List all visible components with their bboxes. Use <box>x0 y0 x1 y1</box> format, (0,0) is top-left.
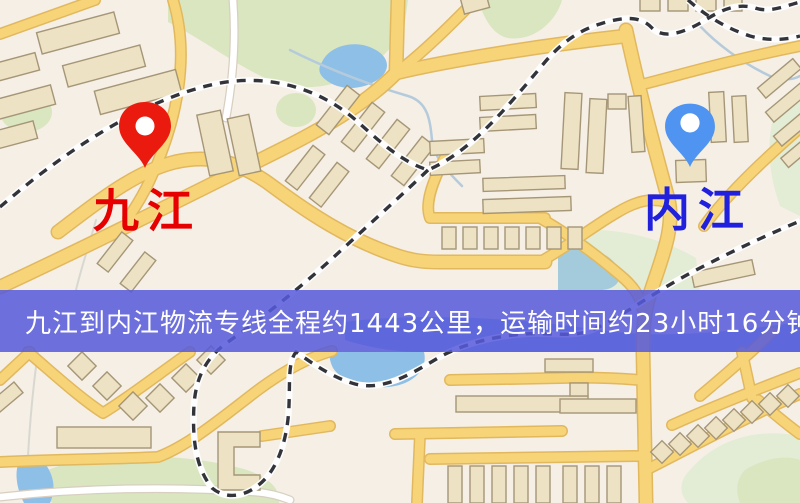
map-canvas <box>0 0 800 503</box>
minor-roads <box>0 0 290 500</box>
destination-pin[interactable] <box>665 104 715 167</box>
origin-label: 九江 <box>93 175 201 241</box>
route-info-text: 九江到内江物流专线全程约1443公里，运输时间约23小时16分钟. <box>0 290 800 352</box>
map-screenshot: 九江 内江 九江到内江物流专线全程约1443公里，运输时间约23小时16分钟. <box>0 0 800 503</box>
destination-label: 内江 <box>644 174 752 240</box>
